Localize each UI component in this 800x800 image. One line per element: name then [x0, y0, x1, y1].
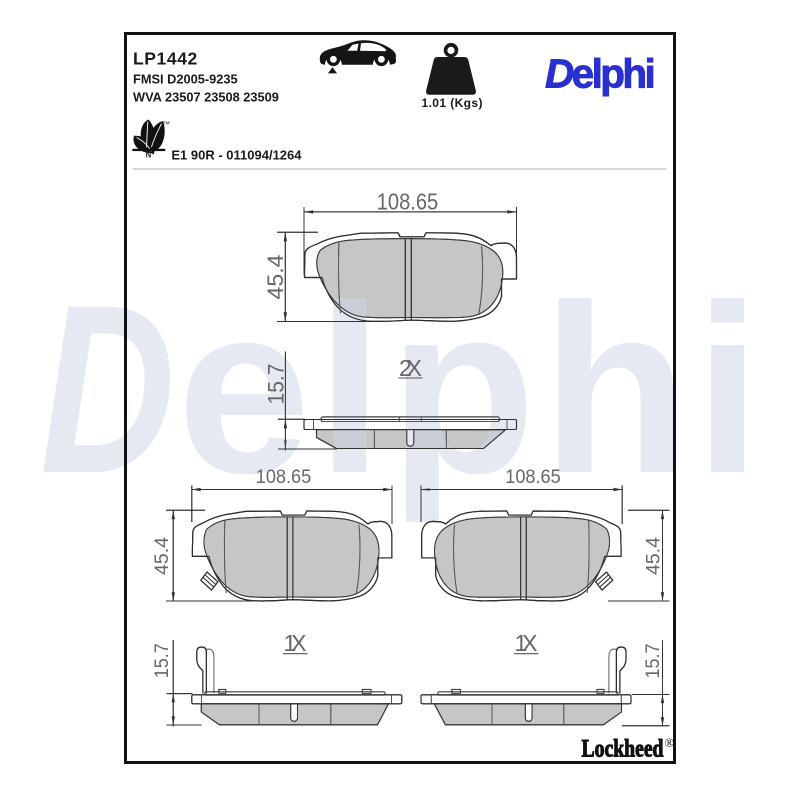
svg-text:15.7: 15.7 — [152, 643, 173, 678]
svg-text:1.01 (Kgs): 1.01 (Kgs) — [422, 96, 483, 110]
svg-text:108.65: 108.65 — [256, 467, 312, 488]
svg-text:WVA 23507 23508 23509: WVA 23507 23508 23509 — [133, 90, 279, 105]
svg-text:™: ™ — [163, 120, 171, 129]
svg-text:1X: 1X — [284, 630, 307, 656]
svg-text:FMSI D2005-9235: FMSI D2005-9235 — [133, 71, 238, 86]
svg-text:45.4: 45.4 — [152, 537, 173, 575]
svg-text:LP1442: LP1442 — [133, 49, 198, 69]
svg-text:2X: 2X — [399, 355, 422, 381]
svg-text:108.65: 108.65 — [377, 188, 439, 214]
svg-text:108.65: 108.65 — [505, 467, 561, 488]
svg-text:D: D — [40, 255, 175, 524]
svg-text:®: ® — [665, 736, 675, 750]
svg-text:15.7: 15.7 — [264, 364, 289, 405]
svg-text:E1 90R - 011094/1264: E1 90R - 011094/1264 — [171, 147, 302, 162]
svg-text:45.4: 45.4 — [644, 537, 665, 575]
svg-text:45.4: 45.4 — [263, 255, 288, 300]
svg-text:1X: 1X — [515, 630, 538, 656]
svg-text:Lockheed: Lockheed — [582, 734, 664, 763]
svg-text:Delphi: Delphi — [545, 50, 654, 96]
svg-text:N: N — [146, 151, 152, 160]
svg-text:15.7: 15.7 — [643, 644, 664, 679]
